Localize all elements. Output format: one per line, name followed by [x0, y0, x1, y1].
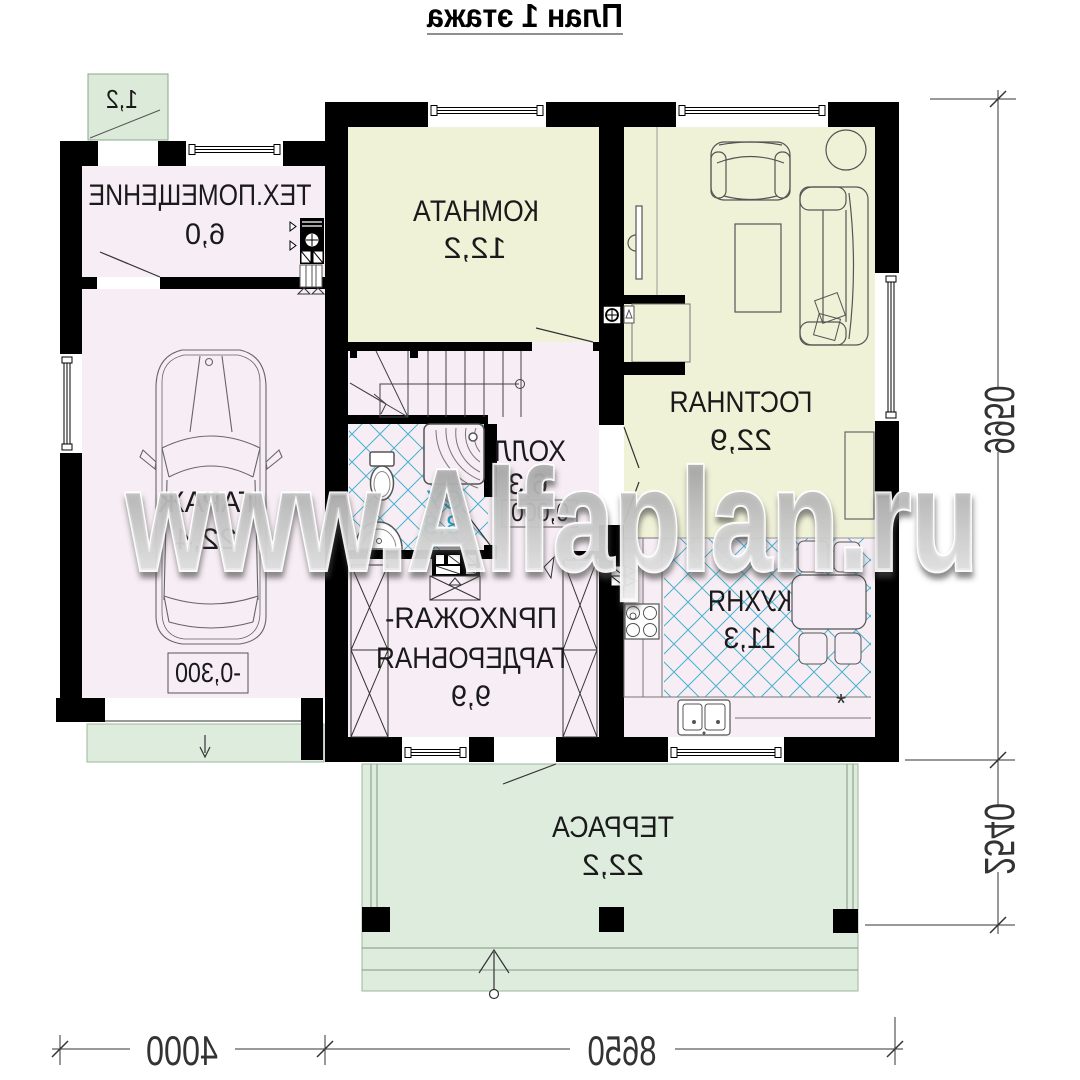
svg-text:ТЕРРАСА: ТЕРРАСА	[552, 811, 674, 844]
svg-text:-0,300: -0,300	[175, 657, 241, 688]
svg-text:4000: 4000	[146, 1027, 218, 1074]
svg-text:2540: 2540	[975, 803, 1023, 875]
svg-text:www.Alfaplan.ru: www.Alfaplan.ru	[125, 439, 978, 601]
svg-text:22,2: 22,2	[582, 849, 644, 882]
svg-text:12,2: 12,2	[444, 232, 507, 265]
svg-text:11,3: 11,3	[724, 622, 777, 655]
svg-text:1,2: 1,2	[106, 84, 138, 114]
svg-text:План 1 этажа: План 1 этажа	[426, 0, 623, 34]
svg-text:ТЕХ.ПОМЕЩЕНИЕ: ТЕХ.ПОМЕЩЕНИЕ	[89, 179, 312, 212]
svg-text:ГАРДЕРОБНАЯ: ГАРДЕРОБНАЯ	[376, 642, 566, 675]
svg-text:6,0: 6,0	[185, 218, 225, 251]
svg-text:9950: 9950	[975, 386, 1023, 455]
svg-text:КОМНАТА: КОМНАТА	[413, 195, 539, 228]
svg-text:*: *	[836, 688, 846, 718]
svg-text:ГОСТИНАЯ: ГОСТИНАЯ	[670, 386, 813, 419]
svg-text:9,9: 9,9	[451, 680, 491, 713]
svg-text:ПРИХОЖАЯ-: ПРИХОЖАЯ-	[385, 602, 557, 635]
svg-text:8650: 8650	[588, 1027, 657, 1074]
